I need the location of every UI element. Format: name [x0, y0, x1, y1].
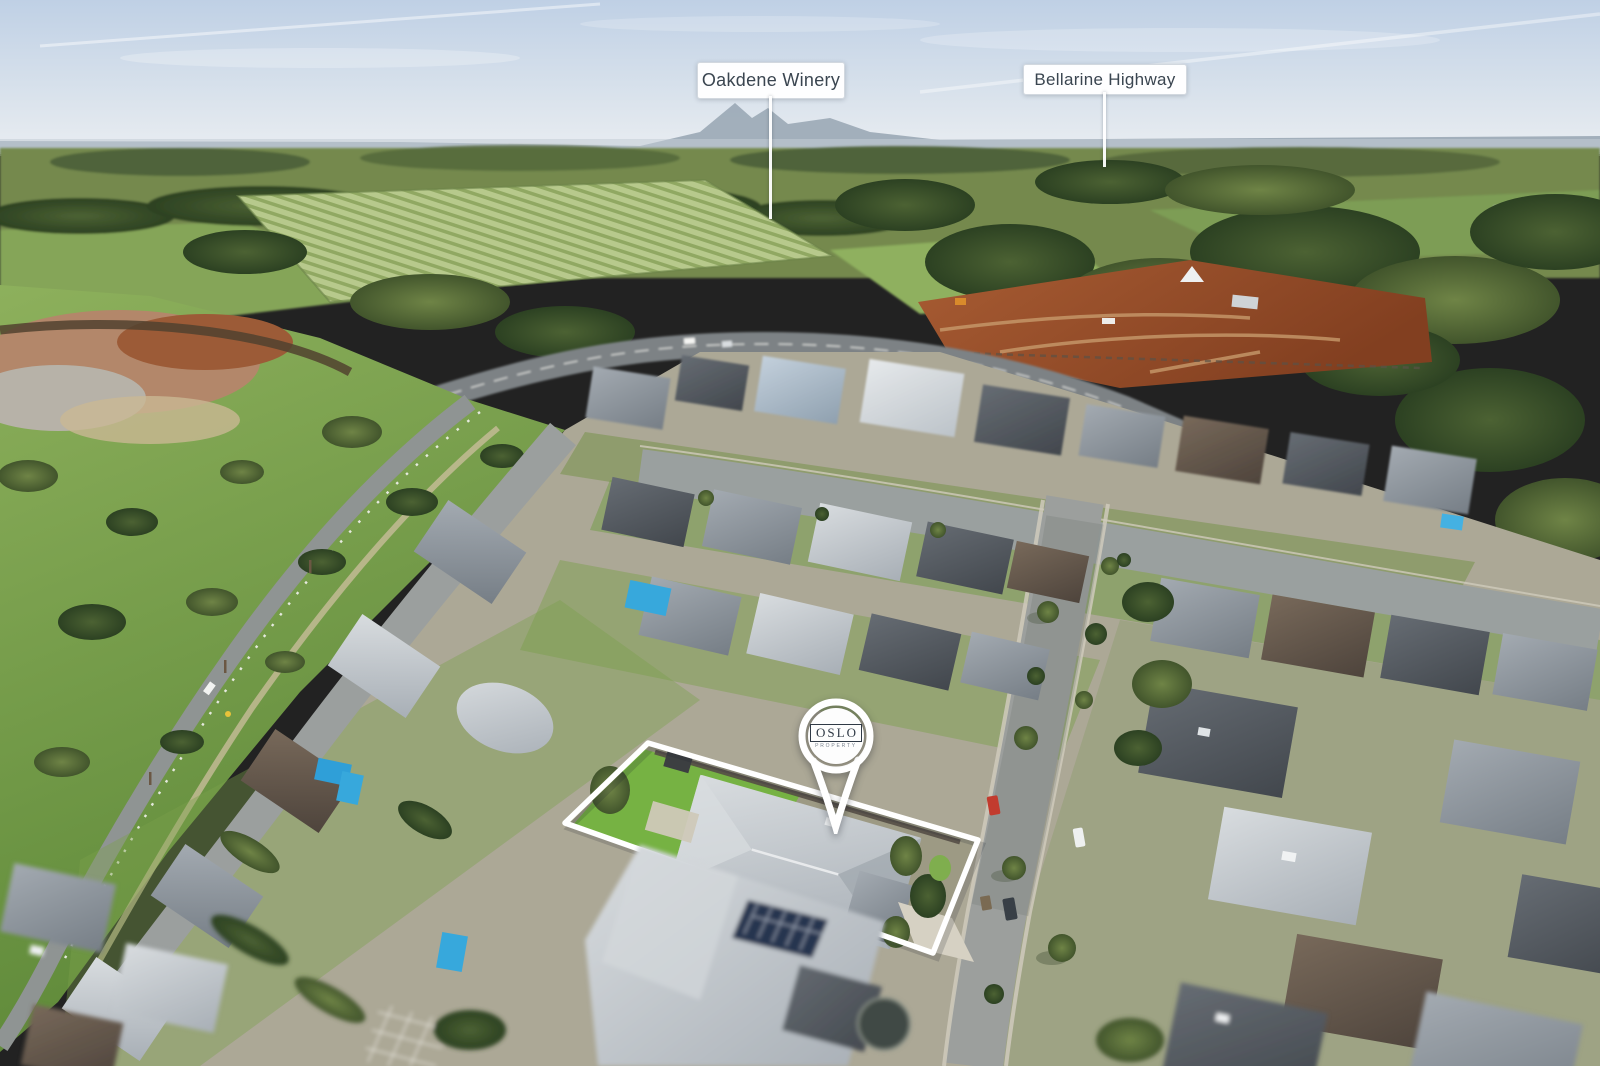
- label-oakdene-winery: Oakdene Winery: [697, 62, 845, 99]
- pin-brand-subtext: PROPERTY: [815, 744, 857, 749]
- pointer-line-oakdene: [769, 96, 772, 219]
- aerial-photo: Oakdene Winery Bellarine Highway OSLO PR…: [0, 0, 1600, 1066]
- label-oakdene-winery-text: Oakdene Winery: [702, 70, 840, 91]
- aerial-scene: [0, 0, 1600, 1066]
- label-bellarine-highway: Bellarine Highway: [1023, 64, 1187, 95]
- label-bellarine-highway-text: Bellarine Highway: [1034, 70, 1175, 90]
- pin-logo-disc: OSLO PROPERTY: [808, 708, 864, 764]
- pin-brand-text: OSLO: [810, 724, 862, 742]
- location-pin-icon: OSLO PROPERTY: [790, 694, 882, 834]
- pointer-line-bellarine: [1103, 92, 1106, 167]
